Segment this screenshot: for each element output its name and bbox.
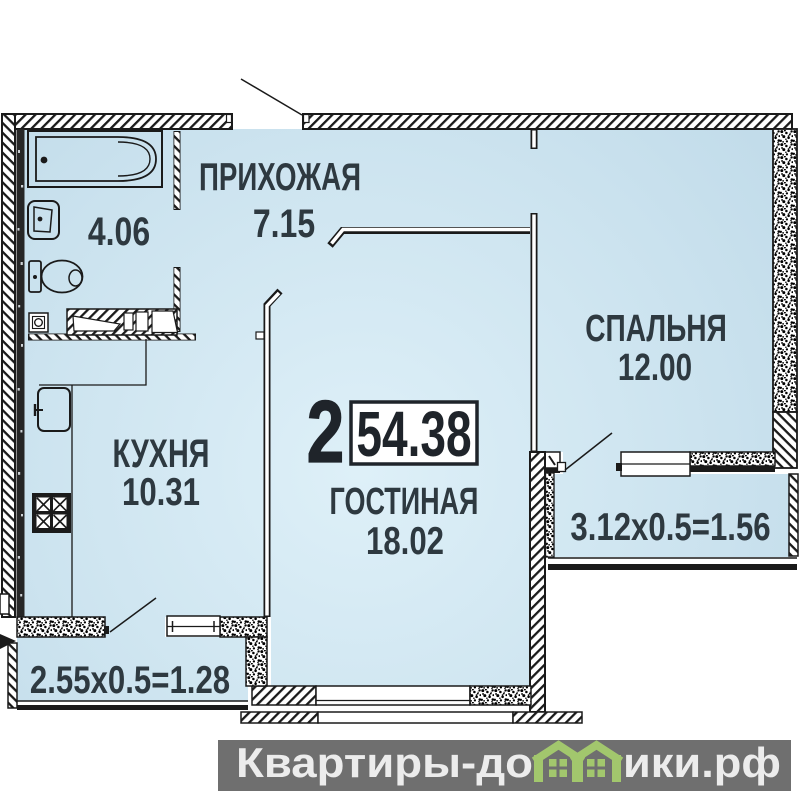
svg-text:ики.рф: ики.рф (623, 739, 781, 786)
svg-text:54.38: 54.38 (356, 399, 471, 470)
svg-text:7.15: 7.15 (253, 201, 315, 246)
svg-text:Квартиры-до: Квартиры-до (236, 739, 533, 786)
svg-text:10.31: 10.31 (122, 471, 200, 514)
svg-text:ПРИХОЖАЯ: ПРИХОЖАЯ (199, 155, 361, 199)
svg-text:12.00: 12.00 (618, 347, 692, 389)
svg-text:2.55х0.5=1.28: 2.55х0.5=1.28 (30, 659, 230, 702)
svg-text:ГОСТИНАЯ: ГОСТИНАЯ (330, 479, 479, 522)
svg-text:СПАЛЬНЯ: СПАЛЬНЯ (585, 308, 727, 350)
svg-text:3.12х0.5=1.56: 3.12х0.5=1.56 (570, 506, 770, 549)
svg-text:КУХНЯ: КУХНЯ (113, 431, 210, 476)
svg-text:2: 2 (307, 382, 345, 481)
svg-text:18.02: 18.02 (366, 520, 444, 563)
svg-text:4.06: 4.06 (88, 209, 150, 254)
